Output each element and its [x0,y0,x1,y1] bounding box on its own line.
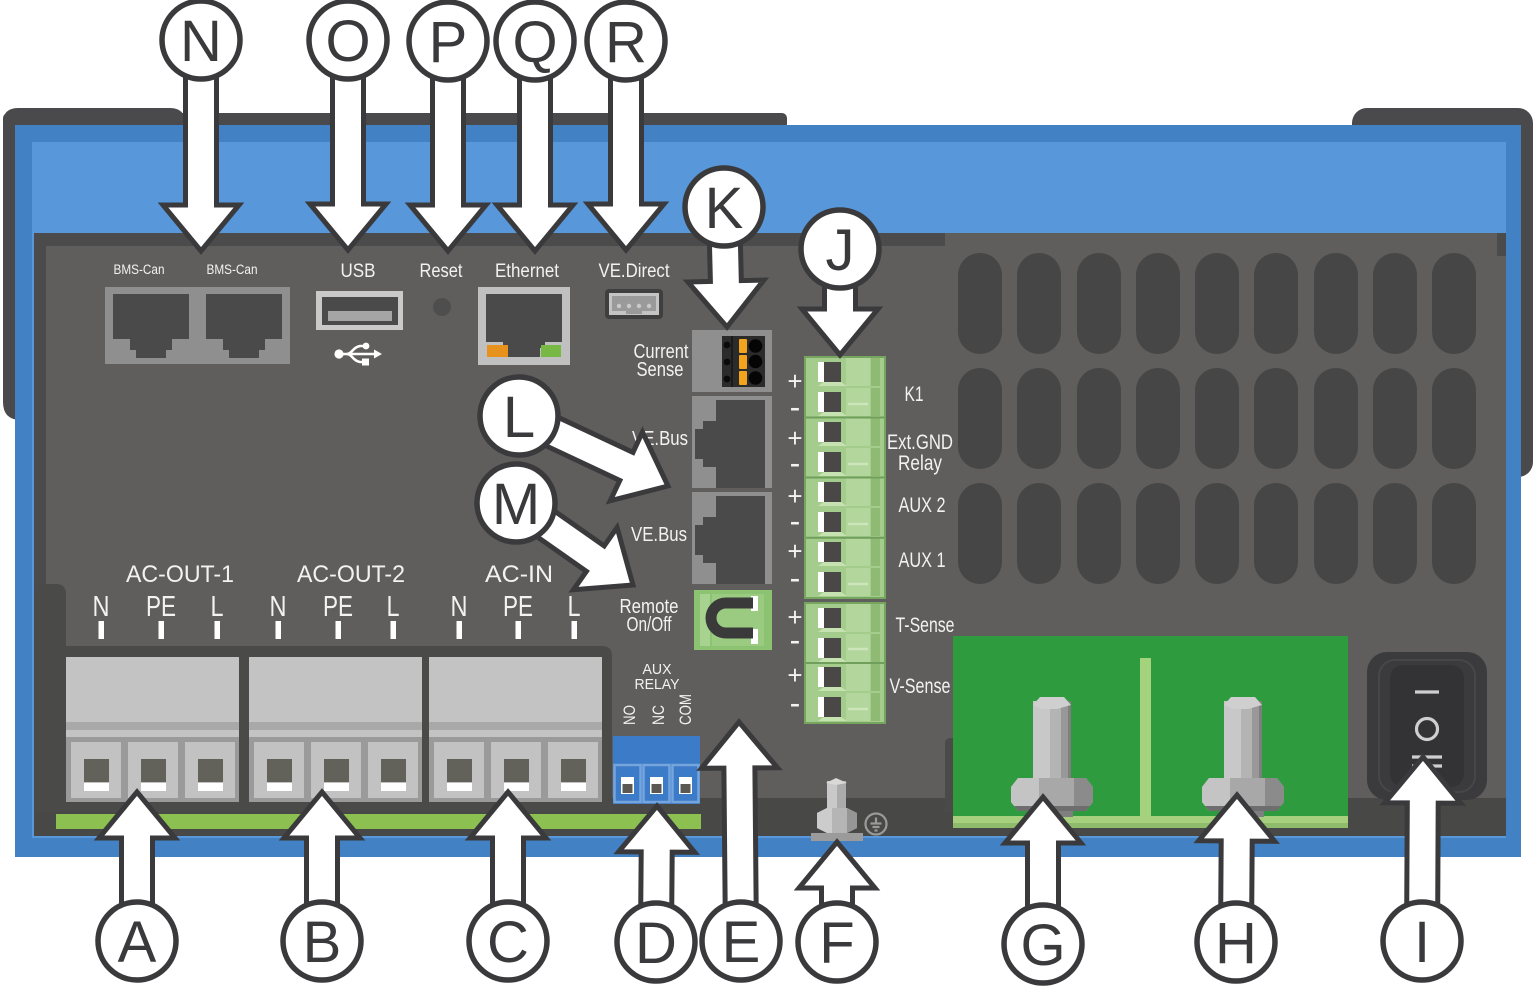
svg-text:Sense: Sense [637,359,684,381]
svg-text:AC-IN: AC-IN [485,561,553,588]
svg-text:K: K [705,176,744,241]
svg-text:-: - [790,389,801,425]
svg-text:-: - [790,445,801,481]
svg-text:R: R [605,10,647,75]
svg-text:AUX 2: AUX 2 [899,494,946,517]
svg-text:L: L [568,591,581,623]
svg-text:BMS-Can: BMS-Can [114,262,165,277]
svg-text:H: H [1215,911,1257,976]
svg-text:C: C [487,910,529,975]
svg-text:L: L [387,591,400,623]
svg-text:K1: K1 [905,383,924,406]
svg-text:L: L [503,385,535,450]
svg-text:E: E [722,910,761,975]
svg-text:D: D [635,911,677,976]
svg-text:-: - [790,685,801,721]
svg-text:-: - [790,560,801,596]
svg-text:On/Off: On/Off [627,614,672,636]
svg-text:I: I [1414,910,1430,975]
svg-text:BMS-Can: BMS-Can [207,262,258,277]
svg-text:AC-OUT-1: AC-OUT-1 [126,561,234,588]
svg-text:VE.Bus: VE.Bus [631,524,687,546]
svg-text:B: B [303,910,342,975]
svg-text:Reset: Reset [420,261,464,282]
svg-text:N: N [270,591,287,623]
svg-text:AUX 1: AUX 1 [899,549,946,572]
svg-text:PE: PE [323,591,353,623]
svg-text:AUX: AUX [643,662,672,678]
svg-text:Ethernet: Ethernet [495,261,560,282]
svg-text:PE: PE [503,591,533,623]
svg-text:AC-OUT-2: AC-OUT-2 [297,561,405,588]
svg-text:PE: PE [146,591,176,623]
svg-text:P: P [429,10,468,75]
svg-text:M: M [492,472,540,537]
svg-text:RELAY: RELAY [635,677,680,693]
svg-text:T-Sense: T-Sense [896,614,955,637]
svg-text:Ext.GND: Ext.GND [887,431,953,454]
svg-text:Q: Q [512,10,557,75]
svg-text:F: F [819,911,854,976]
svg-text:O: O [325,9,370,74]
svg-text:Relay: Relay [898,452,942,475]
svg-text:L: L [211,591,224,623]
svg-text:USB: USB [341,261,376,282]
svg-text:J: J [826,218,855,283]
svg-text:N: N [180,9,222,74]
svg-text:NC: NC [649,705,668,725]
svg-text:N: N [451,591,468,623]
svg-text:G: G [1020,913,1065,978]
svg-text:-: - [790,503,801,539]
svg-text:V-Sense: V-Sense [890,675,951,698]
svg-text:COM: COM [676,694,695,725]
svg-text:-: - [790,622,801,658]
svg-text:N: N [93,591,110,623]
svg-text:VE.Direct: VE.Direct [599,261,671,282]
svg-text:NO: NO [620,705,639,725]
svg-text:A: A [118,910,157,975]
